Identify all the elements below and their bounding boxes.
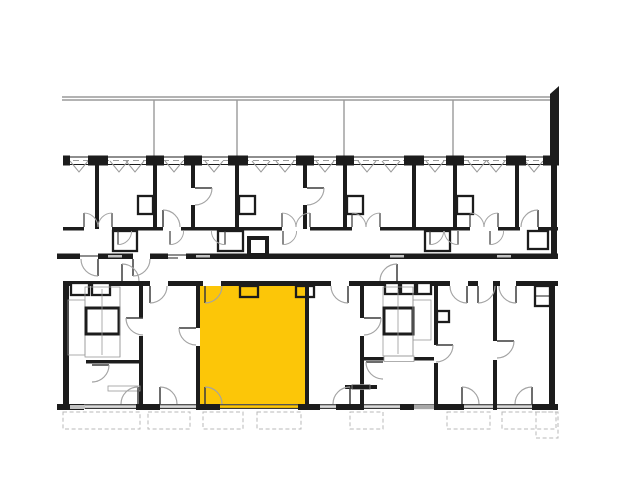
stair-run-icon <box>413 300 431 340</box>
highlighted-unit[interactable] <box>200 286 305 404</box>
door-swing-icon <box>81 259 150 276</box>
niche-box <box>385 283 399 294</box>
stair-run-icon <box>85 335 120 357</box>
stair-core-left <box>68 283 143 391</box>
niche-box <box>417 283 431 294</box>
lower-building <box>57 281 558 410</box>
facade-window-band <box>63 156 559 173</box>
rear-wall <box>57 254 558 277</box>
unit-4[interactable] <box>309 286 360 404</box>
balcony-divider <box>154 100 453 157</box>
unit-6[interactable] <box>438 286 493 404</box>
unit-2[interactable] <box>143 286 196 404</box>
floor-plan-canvas <box>0 0 625 500</box>
balcony-row <box>62 97 552 157</box>
niche-box <box>92 283 110 295</box>
unit-7[interactable] <box>497 286 549 404</box>
upper-building <box>57 86 559 276</box>
door-swing-icon <box>195 188 324 205</box>
elevator-shaft <box>384 308 413 334</box>
sliding-door-icon <box>384 356 414 362</box>
end-wall-right <box>550 86 559 259</box>
entry-sill <box>70 405 85 409</box>
stair-run-icon <box>68 300 85 355</box>
floor-plan <box>0 0 625 500</box>
door-swing-icon <box>118 231 504 245</box>
terrace-outlines <box>63 412 558 438</box>
elevator-shaft <box>86 308 119 334</box>
entry-mat <box>414 405 436 409</box>
unit-partition-walls <box>95 164 519 229</box>
niche-box <box>71 283 89 295</box>
gallery-doors <box>122 264 397 281</box>
